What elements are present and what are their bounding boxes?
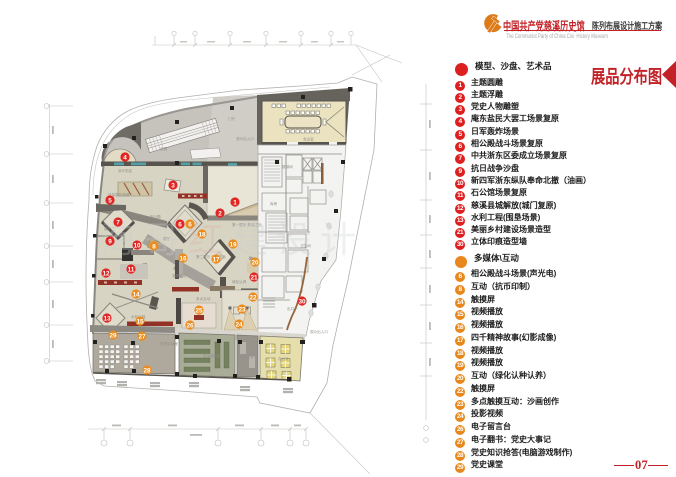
svg-text:10: 10: [133, 242, 141, 249]
svg-text:6: 6: [188, 221, 192, 228]
svg-text:16: 16: [179, 255, 187, 262]
svg-text:29: 29: [109, 332, 117, 339]
svg-text:4: 4: [123, 154, 127, 161]
svg-text:28: 28: [143, 367, 151, 374]
svg-text:5: 5: [108, 197, 112, 204]
svg-text:9: 9: [108, 238, 112, 245]
svg-text:26: 26: [186, 322, 194, 329]
svg-text:14: 14: [132, 291, 140, 298]
svg-text:6: 6: [178, 221, 182, 228]
svg-text:3: 3: [171, 182, 175, 189]
svg-text:30: 30: [298, 298, 306, 305]
svg-text:27: 27: [138, 333, 146, 340]
svg-text:11: 11: [128, 266, 135, 273]
svg-text:17: 17: [212, 256, 220, 263]
svg-text:20: 20: [251, 259, 259, 266]
svg-text:24: 24: [235, 321, 243, 328]
svg-text:2: 2: [218, 210, 222, 217]
svg-text:8: 8: [152, 243, 156, 250]
svg-text:23: 23: [238, 306, 246, 313]
svg-text:19: 19: [229, 241, 237, 248]
svg-text:21: 21: [250, 274, 258, 281]
svg-text:13: 13: [103, 315, 111, 322]
svg-text:22: 22: [249, 294, 257, 301]
svg-text:1: 1: [233, 199, 237, 206]
svg-text:12: 12: [102, 270, 110, 277]
svg-text:18: 18: [198, 231, 206, 238]
svg-text:7: 7: [116, 219, 120, 226]
svg-text:25: 25: [195, 307, 203, 314]
svg-text:15: 15: [136, 318, 144, 325]
